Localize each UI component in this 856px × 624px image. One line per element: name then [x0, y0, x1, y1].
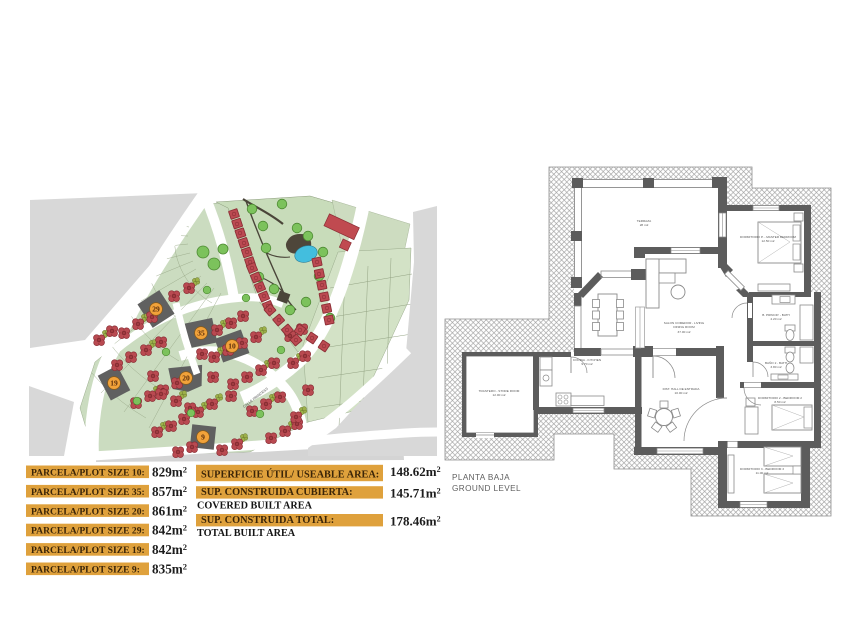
svg-text:PLANTA BAJA: PLANTA BAJA [452, 473, 510, 482]
svg-text:PARCELA/PLOT SIZE 35:: PARCELA/PLOT SIZE 35: [31, 487, 145, 498]
svg-text:29: 29 [152, 305, 160, 314]
svg-text:PARCELA/PLOT SIZE 19:: PARCELA/PLOT SIZE 19: [31, 545, 145, 556]
svg-text:8.50 m2: 8.50 m2 [774, 400, 785, 404]
svg-text:SUP. CONSTRUIDA TOTAL:: SUP. CONSTRUIDA TOTAL: [201, 515, 334, 526]
svg-text:12.50 m2: 12.50 m2 [762, 239, 775, 243]
svg-text:PARCELA/PLOT SIZE 29:: PARCELA/PLOT SIZE 29: [31, 526, 145, 537]
svg-text:11.00 m2: 11.00 m2 [756, 471, 769, 475]
svg-text:178.46m2: 178.46m2 [390, 513, 441, 528]
svg-text:20: 20 [182, 374, 190, 383]
svg-text:12.00 m2: 12.00 m2 [493, 393, 506, 397]
svg-text:COVERED BUILT AREA: COVERED BUILT AREA [197, 500, 313, 511]
svg-text:148.62m2: 148.62m2 [390, 464, 441, 479]
svg-text:DINING ROOM: DINING ROOM [673, 325, 695, 329]
svg-text:PARCELA/PLOT SIZE 20:: PARCELA/PLOT SIZE 20: [31, 506, 145, 517]
svg-text:842m2: 842m2 [152, 542, 187, 557]
svg-text:35: 35 [197, 329, 205, 338]
svg-text:TOTAL BUILT AREA: TOTAL BUILT AREA [197, 528, 296, 539]
svg-text:28 m2: 28 m2 [640, 223, 649, 227]
svg-text:842m2: 842m2 [152, 523, 187, 538]
svg-text:857m2: 857m2 [152, 484, 187, 499]
svg-text:3.80 m2: 3.80 m2 [770, 365, 781, 369]
svg-text:PARCELA/PLOT SIZE 9:: PARCELA/PLOT SIZE 9: [31, 565, 140, 576]
svg-text:SUPERFICIE ÚTIL/ USEABLE AREA:: SUPERFICIE ÚTIL/ USEABLE AREA: [201, 469, 379, 481]
svg-text:9.70 m2: 9.70 m2 [581, 362, 592, 366]
svg-text:10.00 m2: 10.00 m2 [675, 391, 688, 395]
svg-text:37.00 m2: 37.00 m2 [678, 330, 691, 334]
svg-text:835m2: 835m2 [152, 562, 187, 577]
svg-text:829m2: 829m2 [152, 465, 187, 480]
svg-text:SUP. CONSTRUIDA CUBIERTA:: SUP. CONSTRUIDA CUBIERTA: [201, 487, 353, 498]
svg-text:4.20 m2: 4.20 m2 [770, 317, 781, 321]
svg-text:145.71m2: 145.71m2 [390, 486, 441, 501]
svg-text:GROUND LEVEL: GROUND LEVEL [452, 484, 521, 493]
svg-text:861m2: 861m2 [152, 503, 187, 518]
svg-text:19: 19 [110, 379, 118, 388]
svg-text:9: 9 [201, 433, 205, 442]
svg-text:10: 10 [228, 342, 236, 351]
svg-text:PARCELA/PLOT SIZE 10:: PARCELA/PLOT SIZE 10: [31, 468, 145, 479]
